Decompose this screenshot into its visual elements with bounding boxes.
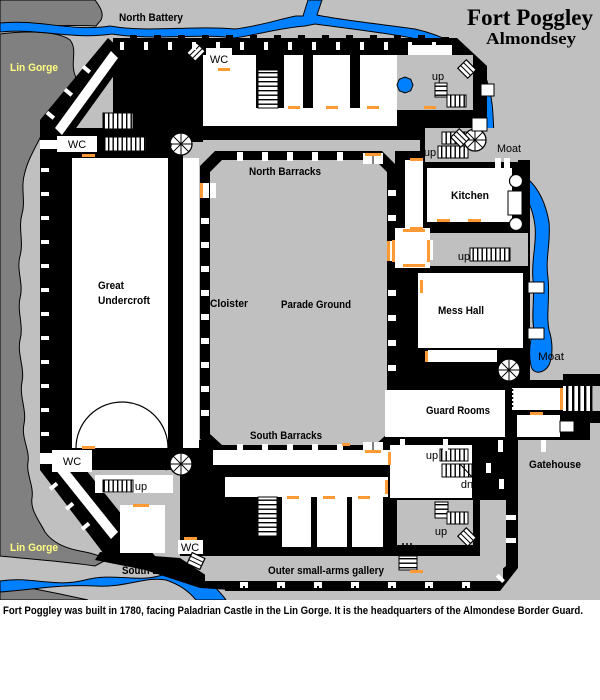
label-wc-southwest: WC: [63, 456, 81, 468]
stair-down-northeast: dn: [458, 119, 470, 131]
label-north-battery: North Battery: [119, 12, 184, 24]
south-corridor: [225, 477, 388, 497]
stair-up-cloister-nw: up: [160, 139, 172, 151]
stair-up-cloister-sw: up: [159, 459, 171, 471]
stair-up-north: up: [262, 58, 274, 70]
label-south-barracks: South Barracks: [250, 430, 322, 442]
label-mess-hall: Mess Hall: [438, 305, 484, 317]
label-wc-south: WC: [181, 542, 199, 554]
label-outer-gallery: Outer small-arms gallery: [268, 565, 385, 577]
fort-map-page: Fort Poggley Almondsey North Battery Sou…: [0, 0, 600, 700]
label-parade-ground: Parade Ground: [281, 299, 351, 311]
label-lin-gorge-top: Lin Gorge: [10, 62, 58, 74]
north-corridor: [203, 108, 397, 126]
west-cloister-walk: [183, 158, 199, 448]
map-subtitle: Almondsey: [486, 29, 577, 48]
stair-up-mess-corridor: up: [458, 251, 470, 263]
fort-map: Fort Poggley Almondsey North Battery Sou…: [0, 0, 600, 700]
label-moat-north: Moat: [497, 143, 521, 155]
label-wc-northwest: WC: [68, 139, 86, 151]
well: [397, 77, 413, 93]
north-barracks-yard: [203, 140, 420, 151]
label-cloister: Cloister: [210, 298, 249, 310]
gate-passage: [512, 388, 562, 410]
stair-down-southeast: dn: [461, 479, 473, 491]
label-kitchen: Kitchen: [451, 190, 489, 202]
spiral-stair-northwest: [170, 133, 192, 155]
spiral-stair-southwest: [170, 453, 192, 475]
stair-up-northwest: up: [136, 116, 148, 128]
stair-up-south-barracks: up: [262, 537, 274, 549]
label-great-undercroft-2: Undercroft: [98, 295, 150, 307]
stair-up-kitchen-yard: up: [424, 147, 436, 159]
kitchen-corridor: [405, 160, 423, 230]
label-moat-south: Moat: [538, 351, 564, 363]
stair-up-southwest: up: [135, 481, 147, 493]
stair-up-northeast-yard: up: [432, 71, 444, 83]
label-guard-rooms: Guard Rooms: [426, 405, 490, 417]
caption-text: Fort Poggley was built in 1780, facing P…: [3, 605, 583, 617]
label-north-barracks: North Barracks: [249, 166, 321, 178]
stair-up-gatehouse: up: [478, 360, 490, 372]
label-lin-gorge-bottom: Lin Gorge: [10, 542, 58, 554]
label-great-undercroft-1: Great: [98, 280, 124, 292]
stair-up-southeast: up: [426, 450, 438, 462]
guard-room-east: [517, 415, 560, 437]
label-wc-north: WC: [210, 54, 228, 66]
label-south-battery: South Battery: [122, 565, 187, 577]
label-gatehouse: Gatehouse: [529, 459, 581, 471]
map-title: Fort Poggley: [467, 5, 593, 30]
spiral-stair-gatehouse: [498, 359, 520, 381]
stair-up-southeast-yard: up: [435, 526, 447, 538]
